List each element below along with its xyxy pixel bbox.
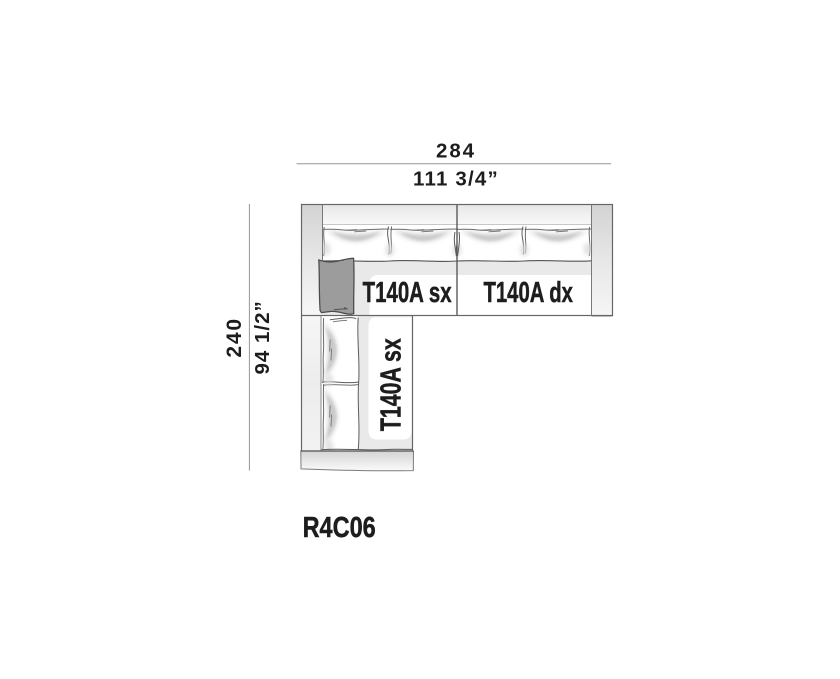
svg-text:T140A sx: T140A sx: [375, 338, 407, 431]
svg-text:R4C06: R4C06: [303, 511, 376, 544]
svg-text:T140A sx: T140A sx: [363, 276, 452, 308]
svg-text:94 1/2”: 94 1/2”: [251, 300, 274, 374]
svg-text:240: 240: [223, 317, 246, 357]
svg-text:284: 284: [436, 140, 476, 163]
svg-text:T140A dx: T140A dx: [484, 276, 574, 308]
svg-text:111 3/4”: 111 3/4”: [413, 167, 499, 190]
